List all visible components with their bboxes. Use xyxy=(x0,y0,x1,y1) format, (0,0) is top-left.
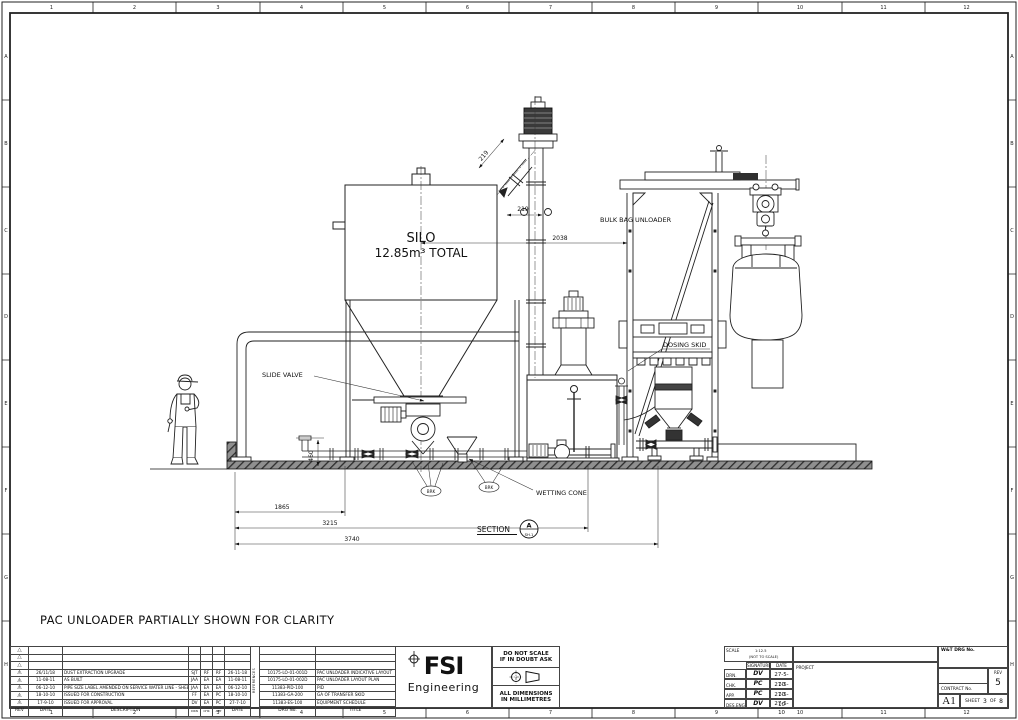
rev-triangle-icon: △5 xyxy=(12,670,27,676)
grid-row-right-h: H xyxy=(1008,621,1016,708)
rev-triangle-icon: △ xyxy=(12,655,27,661)
rev-row: △218-10-10ISSUED FOR CONSTRUCTIONFFEAPC1… xyxy=(11,692,251,700)
drn-date-cell: 27-5-10 xyxy=(770,669,793,679)
clarity-note: PAC UNLOADER PARTIALLY SHOWN FOR CLARITY xyxy=(40,613,335,627)
references-table: REFERENCES 10175-LO-01-001DPAC UNLOADER … xyxy=(250,646,396,717)
app-role-cell: APP. xyxy=(724,689,746,699)
ref-empty-row xyxy=(251,662,396,670)
app-date-cell: 27-5-10 xyxy=(770,689,793,699)
chk-role-cell: CHK. xyxy=(724,679,746,689)
rev-triangle-icon: △1 xyxy=(12,700,27,706)
ref-drg-no: 10175-LO-01-001D xyxy=(260,669,316,677)
wt-drg-label: W&T DRG No. xyxy=(941,648,975,653)
ref-drg-no: 11383-PID-100 xyxy=(260,684,316,692)
rev-empty-row: △ xyxy=(11,662,251,670)
dosing-skid-label: DOSING SKID xyxy=(663,341,706,349)
ground-pipework xyxy=(299,436,527,460)
rev-header-drn: DRN xyxy=(189,707,201,717)
slide-valve-label: SLIDE VALVE xyxy=(262,371,303,379)
deseng-sig-cell: DV xyxy=(746,699,770,708)
rev-triangle-icon: △4 xyxy=(12,678,27,684)
sheet-border xyxy=(2,2,1016,718)
ref-drg-no: 10175-LO-01-002D xyxy=(260,677,316,685)
dim-3215: 3215 xyxy=(322,520,337,527)
platform-plinth xyxy=(718,444,856,461)
title-block: SCALE 1:12.5 (NOT TO SCALE) SIGNATURE DA… xyxy=(724,646,1008,708)
title-top-strip xyxy=(793,646,938,662)
grid-row-right-d: D xyxy=(1008,274,1016,360)
rev-triangle-icon: △ xyxy=(12,648,27,654)
rev-date2: 06-12-10 xyxy=(225,684,251,692)
signature-value: PC xyxy=(754,690,763,697)
size-cell: A1 xyxy=(938,694,960,708)
rev-empty-row: △ xyxy=(11,647,251,655)
rev-empty-row: △ xyxy=(11,654,251,662)
ref-title: PAC UNLOADER INDICATIVE LAYOUT xyxy=(316,669,396,677)
rev-chk: EA xyxy=(201,684,213,692)
project-cell: PROJECT xyxy=(793,662,938,708)
drn-role-cell: DRN. xyxy=(724,669,746,679)
dim-219-chute: 219 xyxy=(477,149,490,162)
rev-app: RF xyxy=(213,669,225,677)
rev-header-description: DESCRIPTION xyxy=(63,707,189,717)
grid-col-bot-6: 6 xyxy=(426,708,509,718)
do-not-scale-cell: DO NOT SCALE IF IN DOUBT ASK xyxy=(493,647,559,668)
grid-row-right-e: E xyxy=(1008,360,1016,447)
grid-row-left-d: D xyxy=(2,274,10,360)
rev-app: PC xyxy=(213,692,225,700)
rev-drn: SJT xyxy=(189,669,201,677)
scale-cell: SCALE 1:12.5 (NOT TO SCALE) xyxy=(724,646,793,662)
rev-triangle-icon: △ xyxy=(12,663,27,669)
rev-header-rev: REV xyxy=(11,707,29,717)
grid-col-top-7: 7 xyxy=(509,2,592,13)
grid-col-top-11: 11 xyxy=(842,2,925,13)
date-label: DATE xyxy=(776,663,787,668)
projection-cell xyxy=(493,668,559,686)
signature-value: PC xyxy=(754,680,763,687)
grid-col-top-9: 9 xyxy=(675,2,758,13)
ref-empty-row: REFERENCES xyxy=(251,647,396,655)
stamp-block: DO NOT SCALE IF IN DOUBT ASK ALL DIMENSI… xyxy=(492,646,560,708)
rev-date2: 26-11-18 xyxy=(225,669,251,677)
rev-date2: 18-10-10 xyxy=(225,692,251,700)
grid-row-left-e: E xyxy=(2,360,10,447)
ref-empty-row xyxy=(251,654,396,662)
if-in-doubt-text: IF IN DOUBT ASK xyxy=(493,657,559,663)
grid-col-bot-12: 12 xyxy=(925,708,1008,718)
ref-row: 11383-GA-200GA OF TRANSFER SKID xyxy=(251,692,396,700)
project-label: PROJECT xyxy=(796,665,814,670)
ref-header-row: DRG No.TITLE xyxy=(251,707,396,717)
section-sheet: SH.1 xyxy=(525,532,534,537)
dim-3740: 3740 xyxy=(344,536,359,543)
rev-date: 18-10-10 xyxy=(29,692,63,700)
rev-header-date2: DATE xyxy=(225,707,251,717)
ref-title: EQUIPMENT SCHEDULE xyxy=(316,699,396,707)
grid-row-right-f: F xyxy=(1008,447,1016,534)
references-side-label: REFERENCES xyxy=(251,647,260,717)
role-label: DES.ENG xyxy=(726,703,745,708)
dim-219-offset: 219 xyxy=(517,206,529,213)
in-millimetres-text: IN MILLIMETRES xyxy=(493,697,559,703)
deseng-role-cell: DES.ENG xyxy=(724,699,746,708)
screw-conveyor xyxy=(497,97,557,375)
rev-app: PC xyxy=(213,699,225,707)
bulk-bag-unloader-label: BULK BAG UNLOADER xyxy=(600,216,672,224)
rotary-feeder xyxy=(553,291,594,375)
ref-title: PAC UNLOADER LAYOUT PLAN xyxy=(316,677,396,685)
grid-col-bot-10: 10 xyxy=(758,708,842,718)
sheet-label: SHEET xyxy=(965,699,980,704)
rev-triangle-icon: △2 xyxy=(12,693,27,699)
rev-chk: RF xyxy=(201,669,213,677)
rev-drn: JAA xyxy=(189,677,201,685)
role-label: APP. xyxy=(726,693,735,698)
rev-date: 06-12-10 xyxy=(29,684,63,692)
ref-row: 11383-ES-100EQUIPMENT SCHEDULE xyxy=(251,699,396,707)
revision-table: △ △ △ △526/11/18DUST EXTRACTION UPGRADES… xyxy=(10,646,251,717)
section-label: SECTION xyxy=(477,525,510,534)
rev-app: EA xyxy=(213,677,225,685)
all-dims-cell: ALL DIMENSIONS IN MILLIMETRES xyxy=(493,686,559,707)
of-label: OF xyxy=(990,699,996,704)
rev-value: 5 xyxy=(989,678,1007,688)
dim-1865: 1865 xyxy=(274,504,289,511)
signature-value: DV xyxy=(753,670,763,677)
grid-row-right-b: B xyxy=(1008,100,1016,187)
balloon-left-label: BRK xyxy=(427,489,436,494)
rev-cell: REV 5 xyxy=(988,668,1008,694)
sheet-size: A1 xyxy=(942,695,955,707)
rev-chk: EA xyxy=(201,677,213,685)
grid-row-right-g: G xyxy=(1008,534,1016,621)
grid-row-left-a: A xyxy=(2,13,10,100)
grid-col-bot-11: 11 xyxy=(842,708,925,718)
wetting-cone-label: WETTING CONE xyxy=(536,489,587,497)
grid-col-top-3: 3 xyxy=(176,2,260,13)
ref-row: 11383-PID-100PID xyxy=(251,684,396,692)
rev-row: △306-12-10PIPE SIZE LABEL AMENDED ON SER… xyxy=(11,684,251,692)
role-label: DRN. xyxy=(726,673,737,678)
chk-sig-cell: PC xyxy=(746,679,770,689)
sheet-no: 3 xyxy=(983,698,987,705)
logo-subtitle: Engineering xyxy=(396,681,491,694)
rev-header-chk: CHK xyxy=(201,707,213,717)
ref-title: GA OF TRANSFER SKID xyxy=(316,692,396,700)
chk-date-cell: 27-5-10 xyxy=(770,679,793,689)
ref-drg-no: 11383-ES-100 xyxy=(260,699,316,707)
role-label: CHK. xyxy=(726,683,736,688)
rev-date: 17-9-10 xyxy=(29,699,63,707)
rev-triangle-icon: △3 xyxy=(12,685,27,691)
contract-cell: CONTRACT No. xyxy=(938,668,988,694)
crosshair-icon xyxy=(406,651,422,667)
service-pipe xyxy=(231,332,519,461)
sheet-cell: SHEET 3 OF 8 xyxy=(960,694,1008,708)
balloon-right-label: BRK xyxy=(485,485,494,490)
grid-row-left-g: G xyxy=(2,534,10,621)
worker-figure xyxy=(168,375,199,464)
logo-block: FSI Engineering xyxy=(395,646,492,708)
ga-drawing: SILO 12.85m³ TOTAL xyxy=(0,0,1018,720)
signature-label: SIGNATURE xyxy=(747,663,771,668)
rev-drn: FF xyxy=(189,692,201,700)
dim-460: 460 xyxy=(308,450,315,462)
ref-row: 10175-LO-01-002DPAC UNLOADER LAYOUT PLAN xyxy=(251,677,396,685)
ref-drg-no: 11383-GA-200 xyxy=(260,692,316,700)
rev-row: △117-9-10ISSUED FOR APPROVALDVEAPC27-7-1… xyxy=(11,699,251,707)
grid-col-top-1: 1 xyxy=(10,2,93,13)
date-header-cell: DATE xyxy=(770,662,793,669)
section-id: A xyxy=(526,522,531,530)
deseng-date-cell: 27-5-10 xyxy=(770,699,793,708)
drawing-sheet: SILO 12.85m³ TOTAL xyxy=(0,0,1018,720)
grid-col-top-2: 2 xyxy=(93,2,176,13)
grid-col-bot-9: 9 xyxy=(675,708,758,718)
hoist-and-bag xyxy=(730,155,802,388)
rev-description: DUST EXTRACTION UPGRADE xyxy=(63,669,189,677)
rev-drn: JAA xyxy=(189,684,201,692)
rev-header-row: REVDATEDESCRIPTIONDRNCHKAPPDATE xyxy=(11,707,251,717)
drn-sig-cell: DV xyxy=(746,669,770,679)
wt-drg-cell: W&T DRG No. xyxy=(938,646,1008,668)
third-angle-projection-icon xyxy=(509,670,543,684)
silo-capacity-label: 12.85m³ TOTAL xyxy=(375,246,468,260)
rev-date2: 11-08-11 xyxy=(225,677,251,685)
rev-header-date: DATE xyxy=(29,707,63,717)
dim-2038: 2038 xyxy=(552,235,567,242)
grid-row-right-a: A xyxy=(1008,13,1016,100)
rev-description: AS BUILT xyxy=(63,677,189,685)
grid-col-top-6: 6 xyxy=(426,2,509,13)
rev-chk: EA xyxy=(201,692,213,700)
rev-description: ISSUED FOR APPROVAL xyxy=(63,699,189,707)
grid-col-bot-8: 8 xyxy=(592,708,675,718)
rev-chk: EA xyxy=(201,699,213,707)
scale-value: 1:12.5 xyxy=(755,649,767,653)
rev-description: PIPE SIZE LABEL AMENDED ON SERVICE WATER… xyxy=(63,684,189,692)
grid-row-left-f: F xyxy=(2,447,10,534)
grid-row-left-h: H xyxy=(2,621,10,708)
rev-description: ISSUED FOR CONSTRUCTION xyxy=(63,692,189,700)
ref-row: 10175-LO-01-001DPAC UNLOADER INDICATIVE … xyxy=(251,669,396,677)
ref-header-no: DRG No. xyxy=(260,707,316,717)
app-sig-cell: PC xyxy=(746,689,770,699)
rev-row: △411-08-11AS BUILTJAAEAEA11-08-11 xyxy=(11,677,251,685)
scale-label: SCALE xyxy=(726,648,739,653)
rev-date: 11-08-11 xyxy=(29,677,63,685)
contract-label: CONTRACT No. xyxy=(941,686,972,691)
rev-label: REV xyxy=(989,670,1007,675)
rev-header-app: APP xyxy=(213,707,225,717)
grid-col-top-8: 8 xyxy=(592,2,675,13)
grid-row-right-c: C xyxy=(1008,187,1016,274)
grid-col-top-5: 5 xyxy=(343,2,426,13)
grid-row-left-b: B xyxy=(2,100,10,187)
grid-row-left-c: C xyxy=(2,187,10,274)
grid-col-top-4: 4 xyxy=(260,2,343,13)
silo-outline xyxy=(333,168,497,396)
sheet-total: 8 xyxy=(999,698,1003,705)
rev-row: △526/11/18DUST EXTRACTION UPGRADESJTRFRF… xyxy=(11,669,251,677)
signature-value: DV xyxy=(753,700,763,707)
grid-col-top-12: 12 xyxy=(925,2,1008,13)
scale-note: (NOT TO SCALE) xyxy=(749,655,778,659)
dosing-skid-equipment xyxy=(636,367,717,460)
rev-app: EA xyxy=(213,684,225,692)
ref-header-title: TITLE xyxy=(316,707,396,717)
grid-col-bot-7: 7 xyxy=(509,708,592,718)
ref-title: PID xyxy=(316,684,396,692)
silo-label: SILO xyxy=(406,231,435,246)
rev-date: 26/11/18 xyxy=(29,669,63,677)
section-marker: SECTION A SH.1 xyxy=(477,520,538,538)
rev-date2: 27-7-10 xyxy=(225,699,251,707)
grid-col-top-10: 10 xyxy=(758,2,842,13)
rev-drn: DV xyxy=(189,699,201,707)
signature-header-cell: SIGNATURE xyxy=(746,662,770,669)
